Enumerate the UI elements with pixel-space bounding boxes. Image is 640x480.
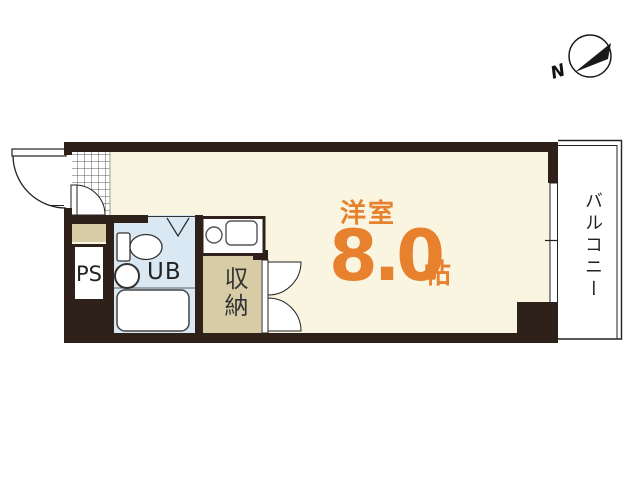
floor-plan-drawing — [0, 0, 640, 480]
balcony-label: バルコニー — [579, 191, 605, 301]
main-room-size-unit: 帖 — [424, 252, 451, 291]
wall-bottom — [64, 333, 517, 343]
wall-under-ps — [64, 301, 114, 335]
wall-pillar — [517, 302, 558, 343]
toilet-tank-icon — [117, 233, 130, 261]
kitchen-counter — [202, 218, 264, 255]
wall-left-upper — [64, 142, 72, 155]
wash-basin-icon — [115, 264, 139, 288]
entrance-door — [12, 149, 66, 208]
closet-door-leaf — [262, 260, 268, 333]
wall-top — [64, 142, 558, 152]
closet-label: 収納 — [217, 266, 252, 320]
floor-plan: 洋室 8.0 帖 UB PS 収納 バルコニー N — [0, 0, 640, 480]
bathtub-icon — [117, 290, 189, 331]
compass-icon — [569, 35, 611, 77]
wall-bath-top — [114, 215, 148, 223]
toilet-bowl-icon — [130, 235, 162, 260]
entrance-door-leaf — [12, 149, 66, 156]
entrance-door-arc — [13, 156, 66, 208]
pipe-space-label: PS — [72, 262, 106, 286]
stove-burner-icon — [206, 227, 222, 243]
wall-right-stub — [548, 142, 558, 183]
unit-bath-label: UB — [147, 259, 182, 285]
hall-floor-strip — [72, 224, 106, 242]
kitchen-sink-icon — [226, 221, 257, 245]
